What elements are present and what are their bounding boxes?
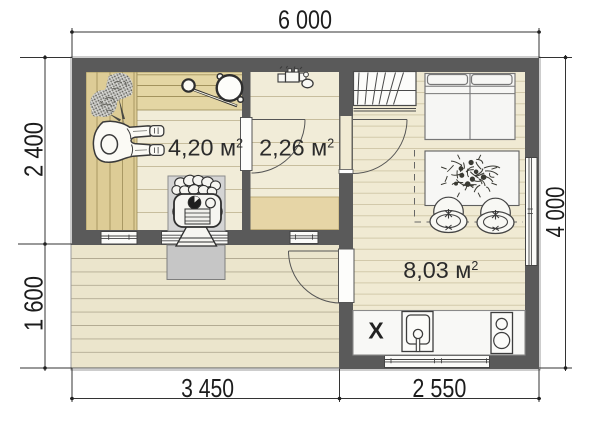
svg-text:6 000: 6 000 <box>278 5 332 35</box>
svg-text:1 600: 1 600 <box>19 276 49 331</box>
svg-text:4,20 м2: 4,20 м2 <box>168 135 243 161</box>
svg-text:2 550: 2 550 <box>412 373 466 403</box>
svg-text:2 400: 2 400 <box>19 122 49 177</box>
svg-text:X: X <box>368 318 384 344</box>
svg-text:8,03 м2: 8,03 м2 <box>403 257 478 283</box>
svg-text:3 450: 3 450 <box>181 373 234 403</box>
svg-text:4 000: 4 000 <box>540 187 570 238</box>
svg-text:2,26 м2: 2,26 м2 <box>259 135 334 161</box>
